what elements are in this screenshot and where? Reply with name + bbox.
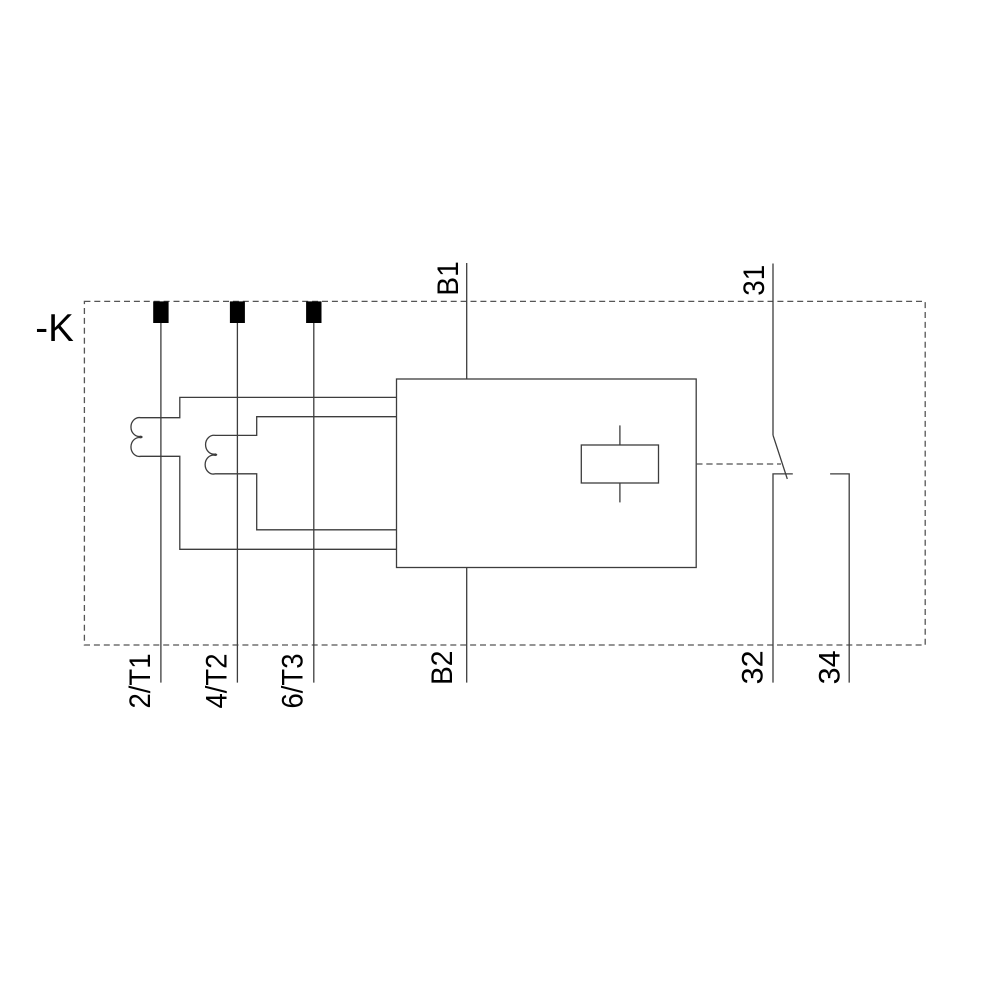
svg-text:32: 32	[737, 650, 770, 684]
svg-text:31: 31	[738, 265, 771, 296]
svg-text:2/T1: 2/T1	[124, 654, 157, 709]
svg-text:34: 34	[814, 650, 847, 684]
svg-text:B1: B1	[432, 261, 465, 296]
svg-text:4/T2: 4/T2	[201, 654, 234, 709]
svg-text:-K: -K	[35, 307, 74, 350]
svg-text:B2: B2	[426, 651, 459, 686]
svg-text:6/T3: 6/T3	[277, 654, 310, 709]
